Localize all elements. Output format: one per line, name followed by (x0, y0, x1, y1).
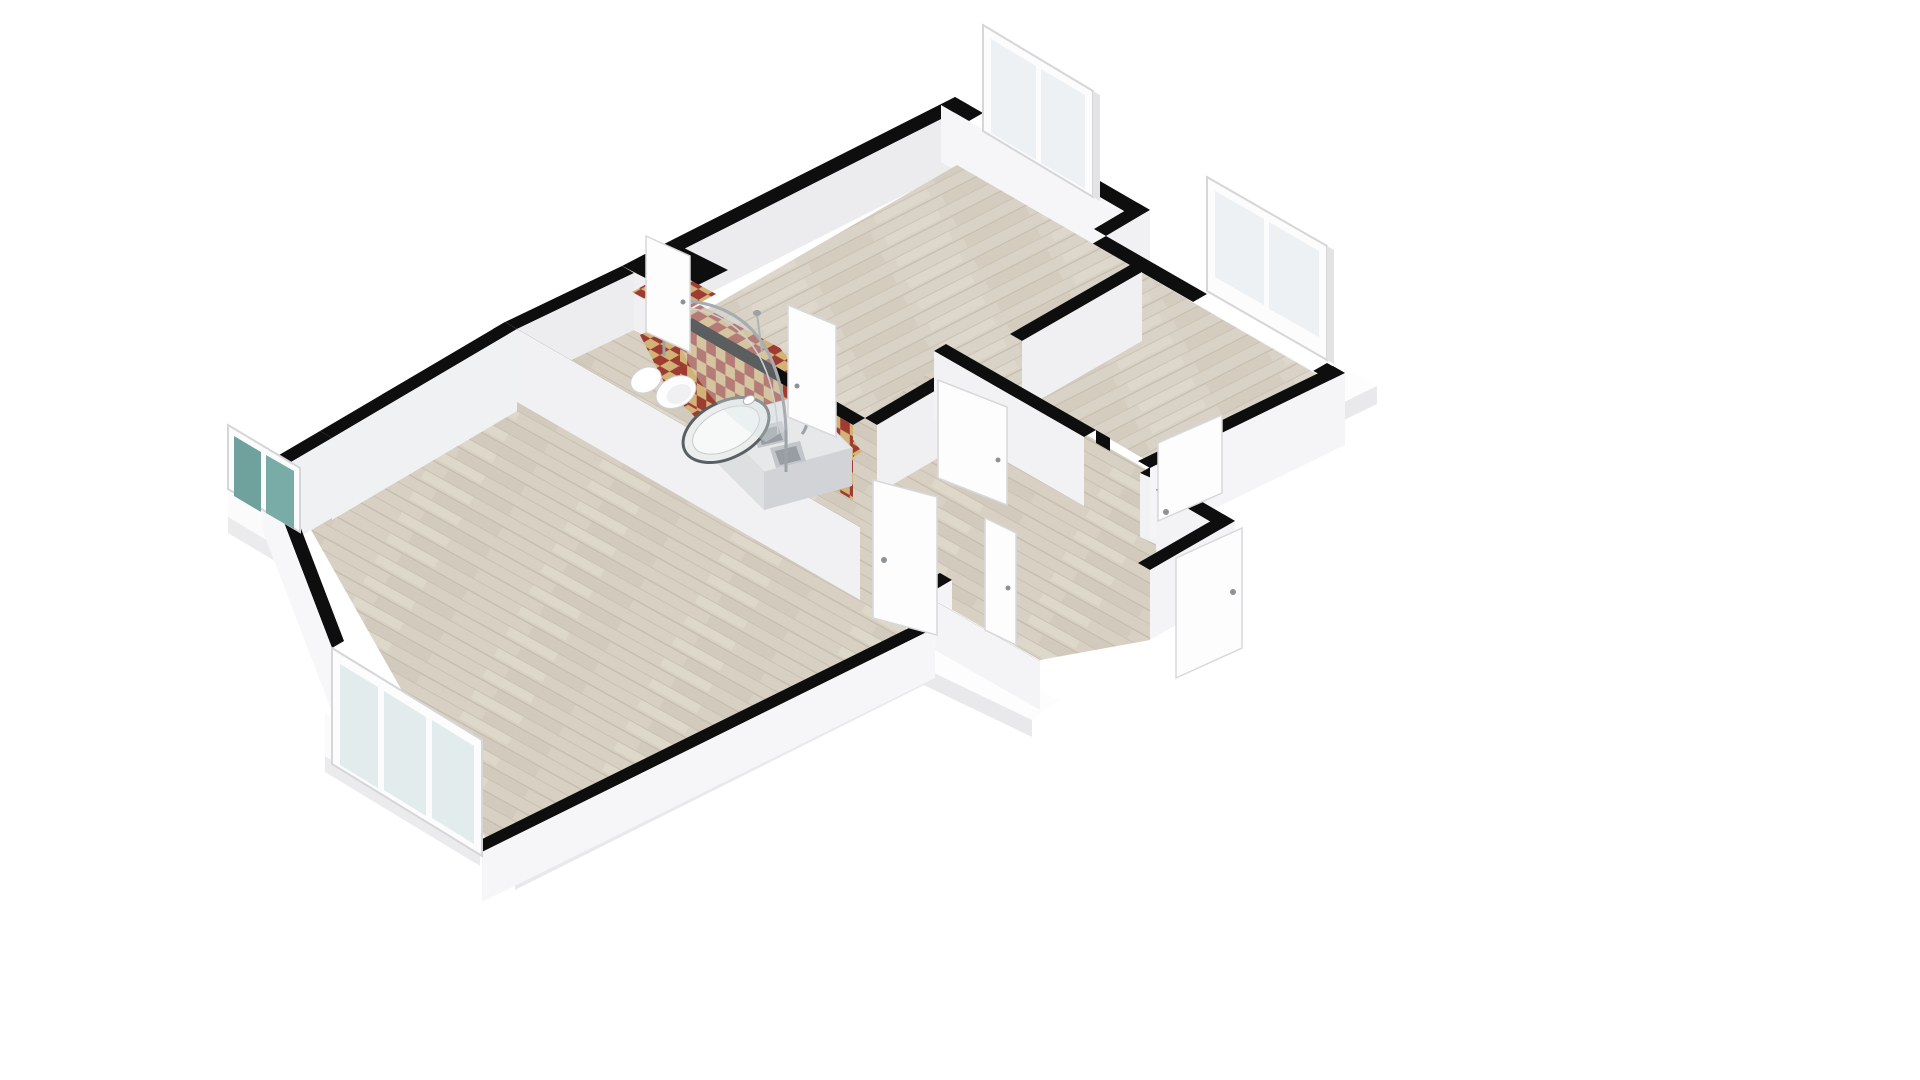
scene-root (228, 25, 1377, 902)
door-bath-c (788, 305, 836, 437)
shower-head (753, 310, 761, 316)
window2-edge (1327, 246, 1334, 364)
floorplan-3d-render (0, 0, 1920, 1080)
door-entry-h-handle (1230, 589, 1236, 595)
floorplan-viewport (0, 0, 1920, 1080)
door-room2-handle (1163, 509, 1169, 515)
door-entry-f (985, 518, 1016, 645)
door-bath-a-handle (681, 300, 686, 305)
door-bath-a (646, 236, 690, 352)
door-entry-f-handle (1006, 586, 1011, 591)
door-bottomroom-handle (881, 557, 887, 563)
door-room1-handle (996, 458, 1001, 463)
door-bath-c-handle (795, 384, 800, 389)
window1-edge (1093, 91, 1100, 201)
